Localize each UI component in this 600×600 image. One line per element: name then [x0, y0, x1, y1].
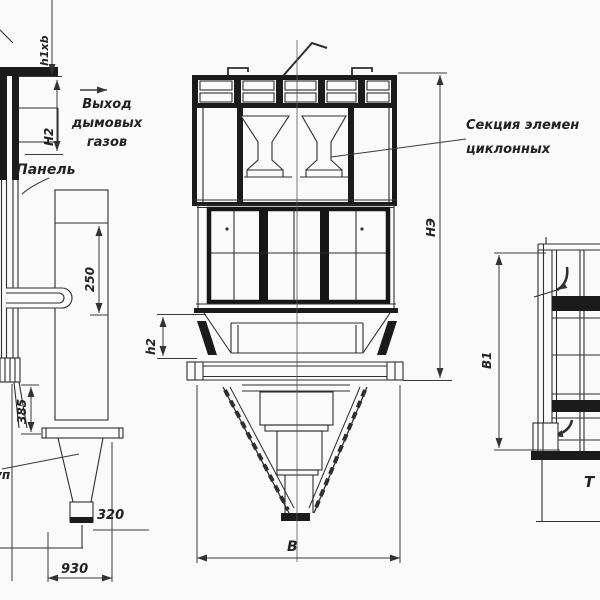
front-view-linework [187, 40, 403, 562]
dim-label-320: 320 [97, 507, 124, 526]
dim-label-385: 385 [15, 399, 29, 424]
dim-label-H2: H2 [42, 128, 56, 146]
clipped-label-T: Т [584, 472, 594, 494]
dim-label-h2: h2 [144, 338, 158, 355]
drawing-line-art [0, 0, 600, 600]
dim-label-h1xb: h1xb [38, 36, 52, 66]
panel-note: Панель [16, 160, 75, 180]
dim-label-250: 250 [83, 267, 97, 292]
side-view-dimensions [494, 253, 560, 450]
cyclone-elements-section-note: Секция элемен циклонных [466, 114, 600, 162]
flue-gas-outlet-note: Выход дымовых газов [64, 96, 150, 153]
dim-label-B: В [287, 537, 298, 557]
dim-label-B1: В1 [480, 352, 494, 370]
dim-label-NE: НЭ [424, 218, 438, 237]
technical-drawing-cyclone-unit: h1xb H2 Выход дымовых газов Панель 250 3… [0, 0, 600, 600]
dim-label-930: 930 [61, 561, 88, 580]
clipped-edge-text-fragment: уп [0, 467, 10, 484]
